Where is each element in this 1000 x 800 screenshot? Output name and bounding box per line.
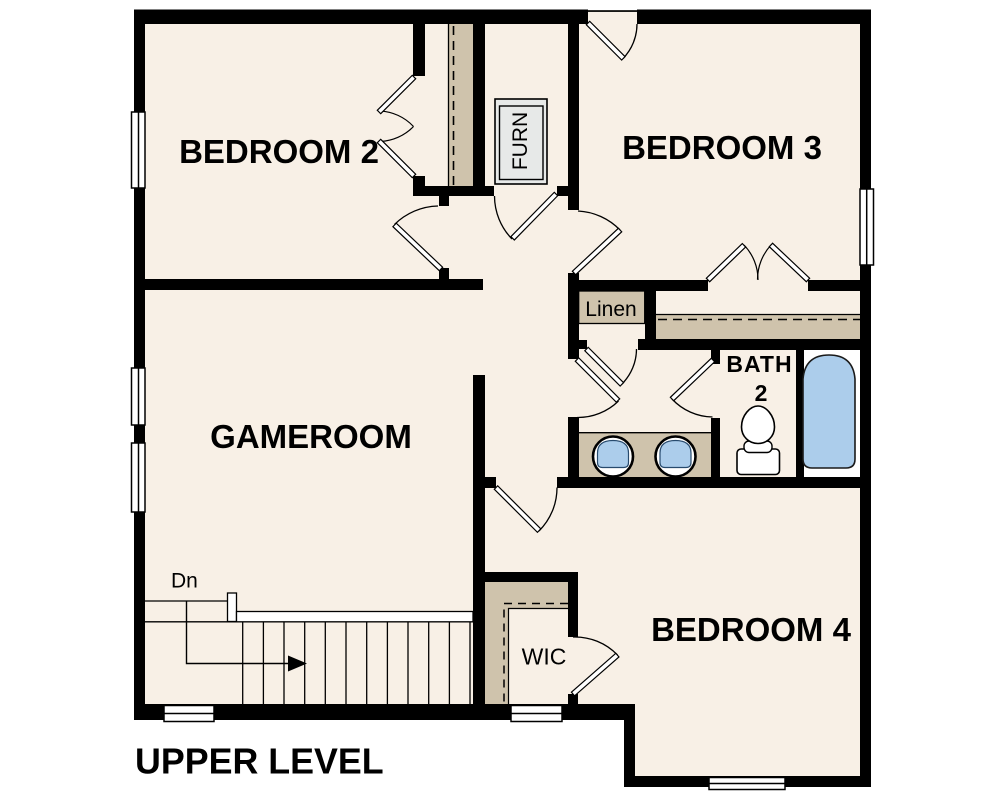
svg-text:FURN: FURN (509, 112, 532, 170)
svg-text:BEDROOM 3: BEDROOM 3 (622, 129, 822, 166)
svg-text:BATH: BATH (726, 351, 792, 377)
svg-text:2: 2 (755, 380, 768, 406)
svg-text:BEDROOM 2: BEDROOM 2 (179, 133, 379, 170)
svg-text:WIC: WIC (522, 644, 567, 670)
svg-text:Dn: Dn (171, 570, 198, 593)
svg-text:BEDROOM 4: BEDROOM 4 (651, 611, 852, 648)
svg-text:UPPER LEVEL: UPPER LEVEL (135, 742, 384, 782)
svg-text:GAMEROOM: GAMEROOM (210, 418, 412, 455)
svg-text:Linen: Linen (585, 298, 636, 321)
